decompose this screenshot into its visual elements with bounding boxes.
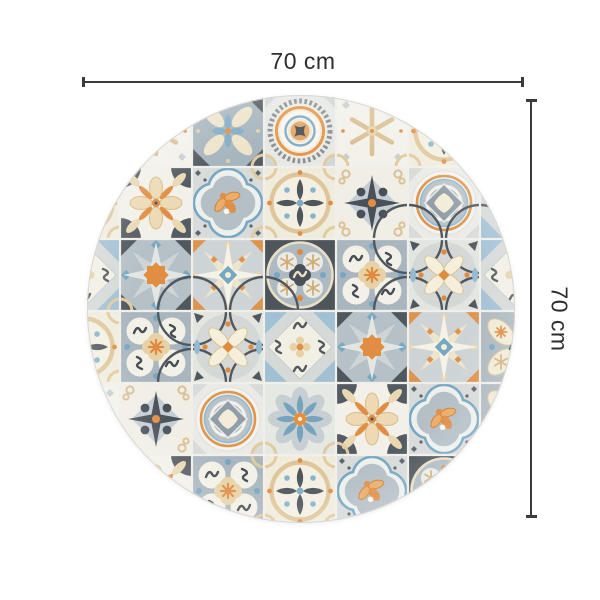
round-vinyl-rug-image xyxy=(0,0,600,600)
rug-tile-patchwork xyxy=(36,83,552,539)
product-dimension-diagram: 70 cm 70 cm xyxy=(0,0,600,600)
